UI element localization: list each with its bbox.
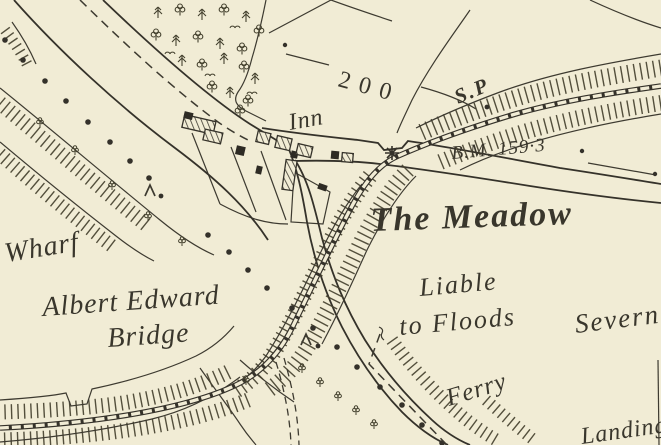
- label-bridge: Bridge: [106, 317, 190, 354]
- map-canvas: Inn 200 S.P B.M. 159·3 The Meadow Liable…: [0, 0, 661, 445]
- level-crossing-icon: [385, 146, 399, 160]
- label-the-meadow: The Meadow: [370, 195, 573, 239]
- map-extract: Inn 200 S.P B.M. 159·3 The Meadow Liable…: [0, 0, 661, 445]
